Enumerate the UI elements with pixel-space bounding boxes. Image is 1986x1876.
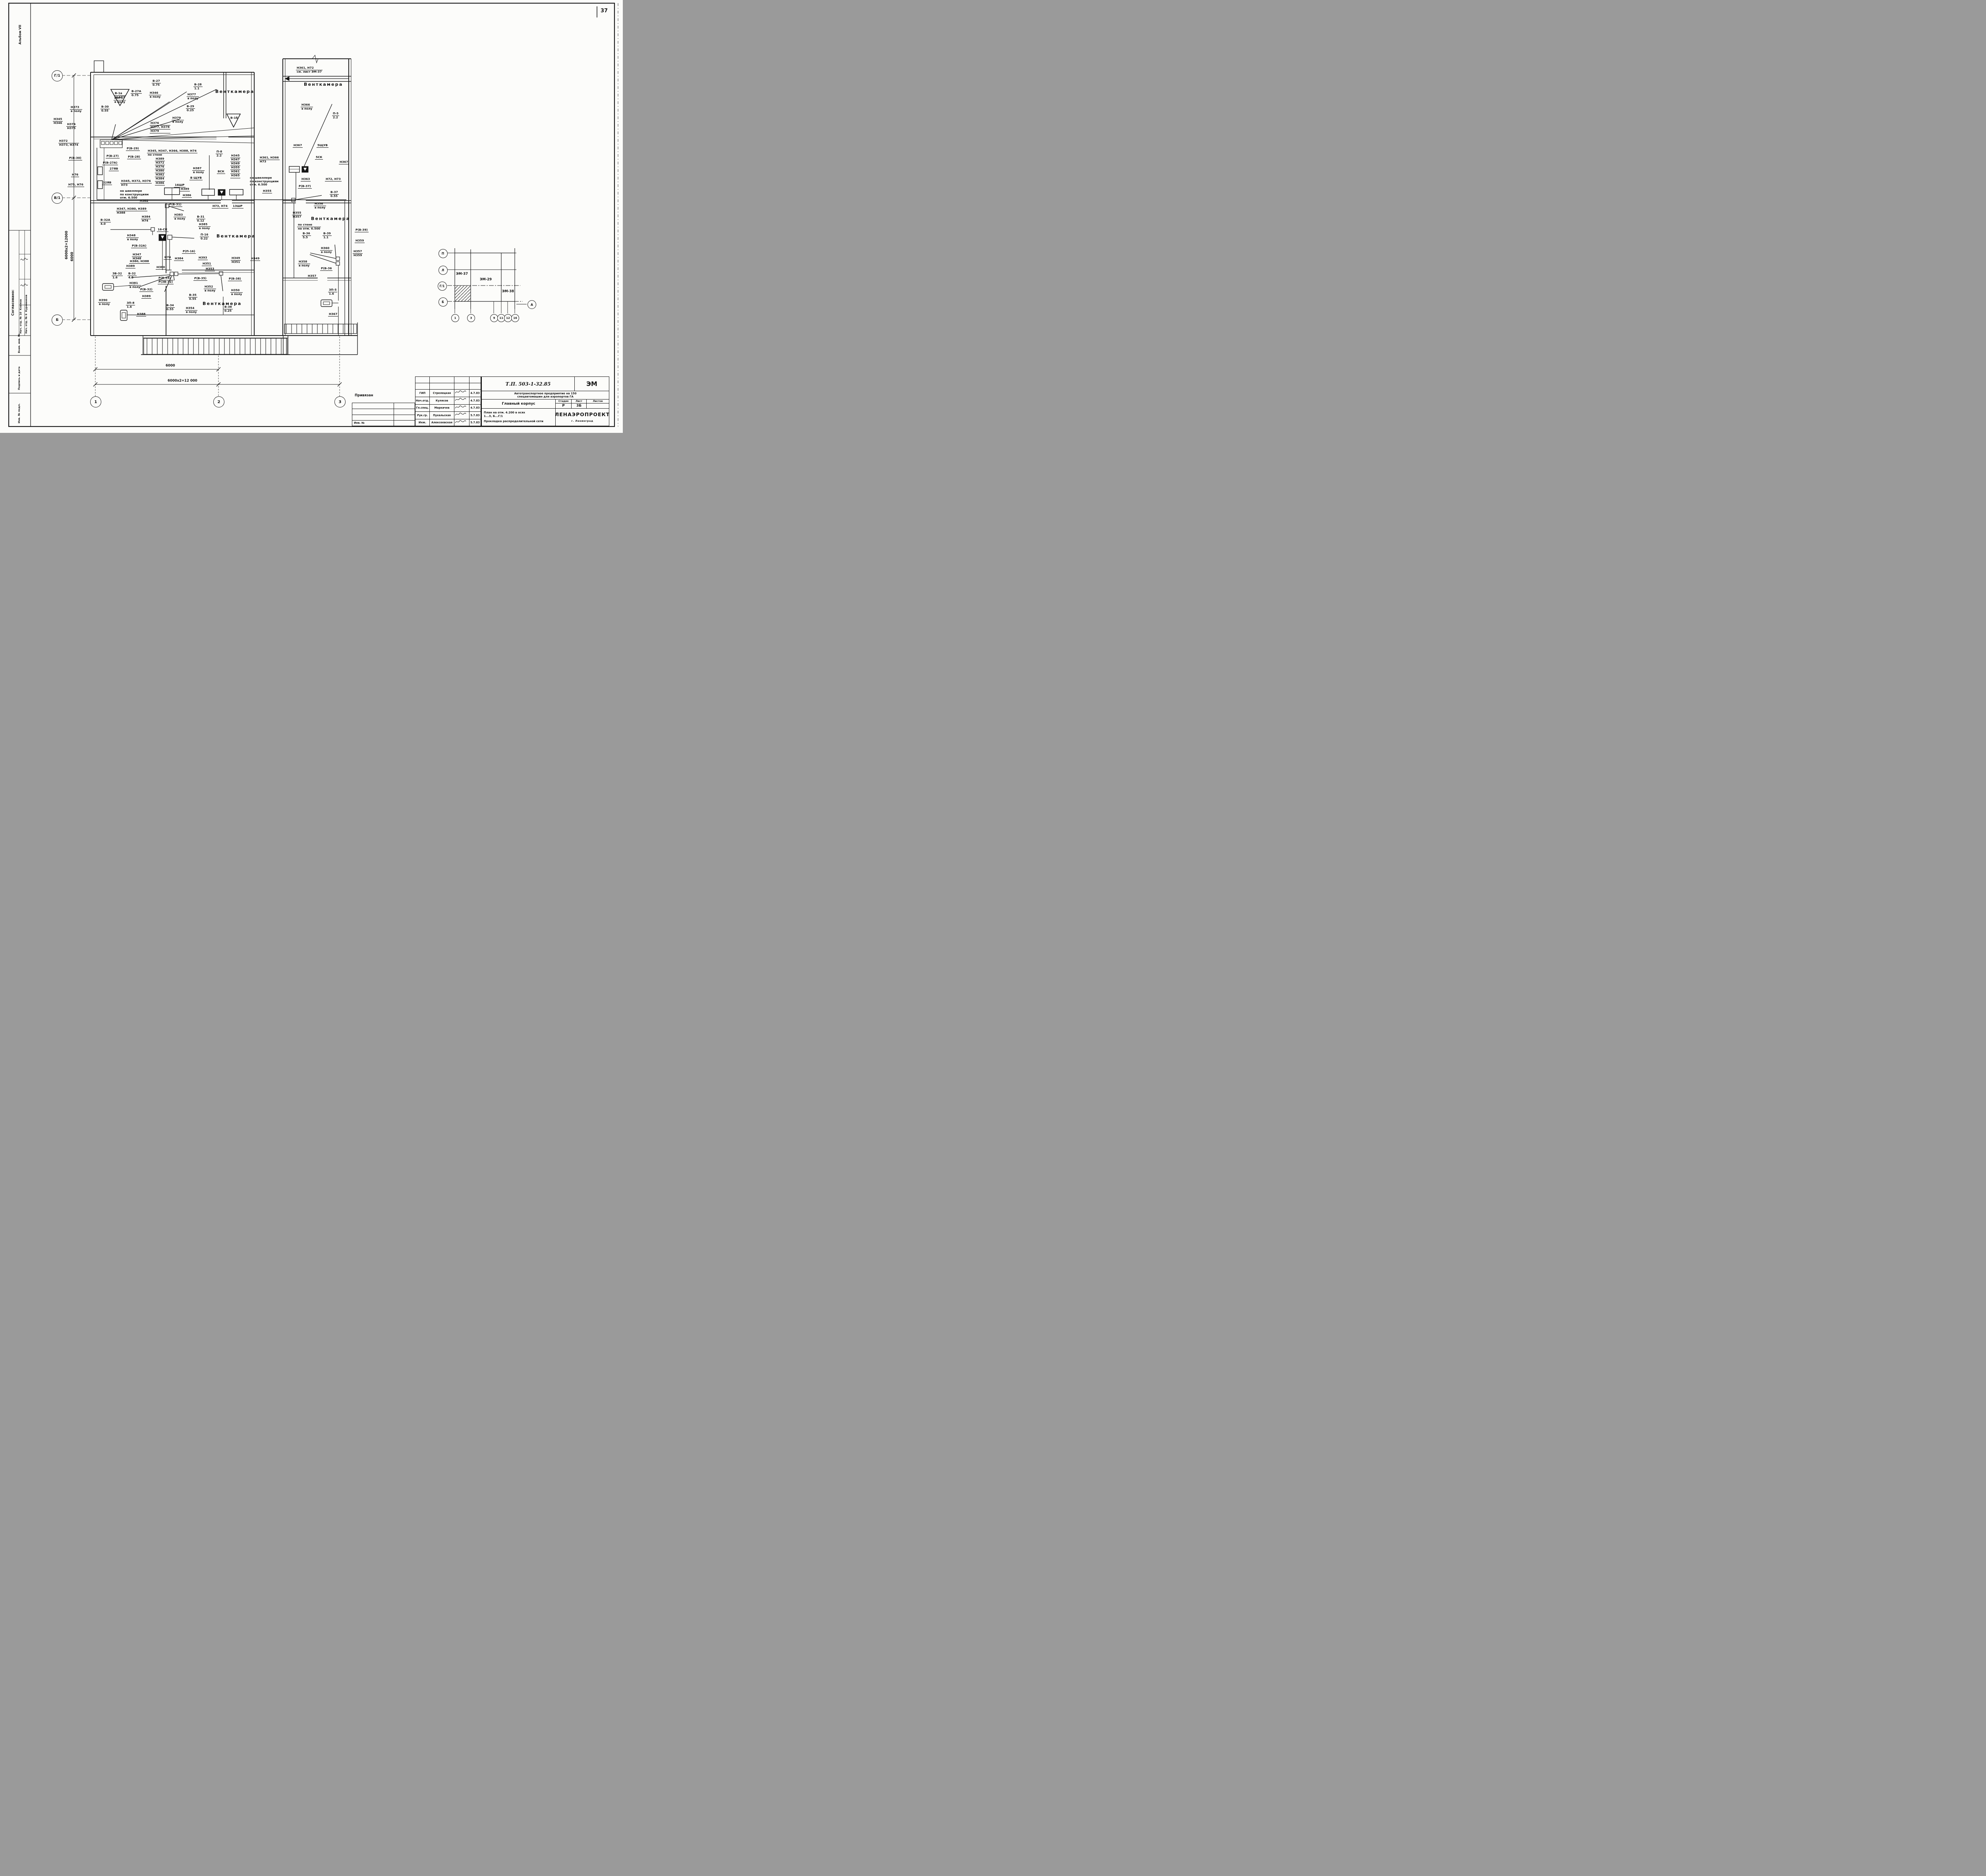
plan-callout: ЗП-81.6 xyxy=(126,301,135,309)
plan-callout: по стенена отм. 6.500 xyxy=(297,223,321,231)
agreed-label: Согласовано: xyxy=(11,290,15,316)
plan-callout: Н366в полу xyxy=(301,103,313,111)
plan-callout: В-1б xyxy=(230,116,239,120)
sig-empty-cell xyxy=(454,377,469,383)
sig-empty-cell xyxy=(430,383,454,390)
plan-callout: Р(В-32А) xyxy=(131,244,147,248)
plan-callout: Н379в полу xyxy=(172,116,184,124)
plan-callout: Н76 xyxy=(71,173,79,177)
sig-role: Гл.спец. xyxy=(415,405,430,412)
project-code: Т.П. 503-1-32.85 xyxy=(482,377,575,391)
plan-callout: В-300.55 xyxy=(100,105,110,113)
plan-callout: Р(В-32) xyxy=(139,288,153,292)
signature-scribble xyxy=(454,419,469,427)
key-plan-axis: Л xyxy=(439,266,448,275)
sheets-value xyxy=(587,403,609,409)
drawing-title: План на отм. 4.200 в осях 1...3, Б...Г/1… xyxy=(482,409,556,426)
signature-scribble xyxy=(454,397,469,405)
plan-callout: П-52.2 xyxy=(332,112,339,120)
sig-empty-cell xyxy=(469,383,481,390)
plan-callout: В-290.25 xyxy=(186,105,195,112)
sig-empty-cell xyxy=(415,377,430,383)
sig-date: 4.7.83 xyxy=(469,397,481,405)
plan-callout: Н380 xyxy=(156,266,166,270)
linked-note: Привязан xyxy=(355,394,373,398)
plan-callout: Н372Н373, Н374 xyxy=(58,139,79,147)
plan-callout: Н385в полу xyxy=(198,223,211,230)
plan-callout: Н358в полу xyxy=(298,260,310,268)
page-number: 37 xyxy=(601,8,608,14)
sig-role: ГИП xyxy=(415,390,430,397)
plan-callout: Н386 xyxy=(182,194,192,198)
key-plan-axis: 16 xyxy=(511,314,519,322)
sig-role: Инж. xyxy=(415,419,430,427)
plan-callout: Венткамера xyxy=(202,301,242,306)
sig-date: 4.7.83 xyxy=(469,405,481,412)
plan-callout: Венткамера xyxy=(216,234,256,239)
plan-callout: Н345Н347Н349Н355Н361Н365 xyxy=(230,154,240,178)
stage-value: Р xyxy=(556,403,572,409)
plan-callout: Венткамера xyxy=(214,89,255,94)
key-plan-axis: 9 xyxy=(490,314,498,322)
plan-callout: Н355 xyxy=(262,189,272,193)
key-plan-zone: ЭМ-38 xyxy=(502,290,514,293)
stage-header: Стадия xyxy=(556,400,572,403)
plan-callout: Н388 xyxy=(136,313,146,317)
plan-callout: Н363 xyxy=(301,178,311,181)
plan-callout: Н361, Н366Н73 xyxy=(259,156,280,164)
plan-callout: Н75, Н76 xyxy=(68,183,84,187)
plan-callout: 6000 xyxy=(165,364,176,368)
sheets-header: Листов xyxy=(587,400,609,403)
plan-callout: В-380.25 xyxy=(224,305,233,313)
plan-callout: 6000х2=12 000 xyxy=(167,379,198,383)
axis-marker: 2 xyxy=(213,396,224,407)
agreed-row-2: Нач. отд. № 6 Куравенков xyxy=(25,295,28,334)
plan-callout: П-82.2 xyxy=(216,150,223,158)
plan-callout: Р(П-16) xyxy=(182,250,196,254)
inv-label: Инв. № xyxy=(354,421,365,425)
plan-callout: Р(В-31) xyxy=(168,203,182,207)
plan-callout: 6000х2=12000 xyxy=(65,230,69,260)
axis-marker: В/1 xyxy=(52,193,63,204)
plan-callout: Р(В-37) xyxy=(298,185,312,189)
plan-callout: Н73, Н74 xyxy=(212,205,228,208)
plan-callout: Н367 xyxy=(293,144,303,148)
plan-callout: Н390в полу xyxy=(98,299,110,306)
plan-callout: Н349 xyxy=(250,257,260,261)
plan-callout: Н382 xyxy=(139,199,149,203)
plan-callout: 5ЩУВ xyxy=(317,144,328,148)
axis-marker: Г/1 xyxy=(52,70,63,81)
plan-callout: Н380, Н388 xyxy=(129,260,150,264)
plan-callout: Н387в полу xyxy=(192,167,205,174)
plan-callout: Н353 xyxy=(205,267,215,271)
drawing-mark: ЭМ xyxy=(575,377,609,391)
plan-callout: 5СК xyxy=(315,156,323,160)
sig-empty-cell xyxy=(454,383,469,390)
sig-name: Алексеевская xyxy=(430,419,454,427)
plan-callout: Р(В-28) xyxy=(127,155,141,159)
plan-callout: Н352в полу xyxy=(204,285,216,293)
plan-callout: В-270.75 xyxy=(152,79,161,87)
building-name: Главный корпус xyxy=(482,400,556,409)
plan-callout: Н377в полу xyxy=(187,93,199,100)
plan-callout: Н376Н377, Н378Н379 xyxy=(150,122,170,133)
plan-callout: на швеллерепо конструкциямотм. 6.500 xyxy=(249,176,279,187)
sig-date: 5.7.83 xyxy=(469,419,481,427)
plan-callout: Венткамера xyxy=(303,82,344,87)
plan-callout: на швеллерепо конструкциямотм. 6.500 xyxy=(119,189,149,200)
plan-callout: Н355Н357 xyxy=(292,211,302,219)
plan-callout: Н356в полу xyxy=(314,202,326,210)
sig-role: Рук.гр. xyxy=(415,412,430,419)
plan-callout: Р(В-30) xyxy=(68,156,82,160)
axis-marker: 3 xyxy=(334,396,346,407)
plan-callout: В-27А0.75 xyxy=(131,90,142,97)
plan-callout: Н74 xyxy=(164,256,172,260)
plan-callout: Н389 xyxy=(141,295,151,299)
plan-callout: Н359 xyxy=(355,239,365,243)
plan-callout: 16-СК xyxy=(157,228,168,232)
plan-callout: Н357 xyxy=(307,274,317,278)
plan-callout: Н367 xyxy=(328,313,338,317)
stamp-inv: Инв. № подл. xyxy=(17,403,21,423)
plan-callout: В-281.1 xyxy=(193,83,203,91)
key-plan-axis: 12 xyxy=(504,314,512,322)
plan-callout: Р(В-27) xyxy=(106,154,120,158)
sig-empty-cell xyxy=(415,383,430,390)
plan-callout: П-160.22 xyxy=(200,233,209,241)
plan-callout: Н384Н74 xyxy=(141,215,151,223)
key-plan-axis: Г/1 xyxy=(438,282,447,291)
sig-empty-cell xyxy=(430,377,454,383)
plan-callout: В-340.55 xyxy=(166,304,175,311)
plan-callout: В-391.1 xyxy=(323,232,332,239)
agreed-row-1: Нач. отд. № 10 Климов xyxy=(19,299,22,334)
plan-callout: Н389Н372Н376Н380Н382Н384Н386 xyxy=(155,157,165,185)
plan-callout: ЗП-51.6 xyxy=(328,288,337,296)
plan-callout: Н345Н346 xyxy=(53,118,63,125)
plan-callout: 27ЯВ xyxy=(109,167,119,171)
axis-marker: Б xyxy=(52,315,63,326)
plan-callout: Н72, Н73 xyxy=(325,178,342,181)
plan-callout: Р(В-39) xyxy=(355,228,369,232)
plan-callout: Н389 xyxy=(126,264,135,268)
stamp-vzam: Взам. инв. № xyxy=(17,334,21,353)
plan-callout: Н349Н351 xyxy=(231,257,241,264)
plan-callout: Н384 xyxy=(174,257,184,261)
key-plan-axis: П xyxy=(439,249,448,258)
key-plan-axis: 3 xyxy=(467,314,475,322)
plan-callout: Н351 xyxy=(202,262,212,266)
plan-callout: Н350в полу xyxy=(230,289,243,296)
plan-callout: Н383в полу xyxy=(174,213,186,221)
sheet-value: 3Б xyxy=(572,403,587,409)
plan-callout: Н345, Н372, Н376Н73 xyxy=(120,179,152,187)
sig-empty-cell xyxy=(469,377,481,383)
plan-callout: Н360в полу xyxy=(320,247,332,254)
key-plan-axis: А xyxy=(527,300,536,309)
plan-callout: Р(В-38) xyxy=(228,277,242,281)
plan-callout: Р(В-34)Р(ЗВ-32) xyxy=(158,276,174,284)
plan-callout: Н346в полу xyxy=(149,91,161,99)
key-plan-zone: ЭМ-29 xyxy=(480,278,492,282)
plan-callout: 32ЯВ xyxy=(102,181,112,185)
plan-callout: В-324.0 xyxy=(128,272,137,280)
plan-callout: 6000 xyxy=(71,251,74,262)
title-block-doc-grid: Инв. № xyxy=(352,403,415,426)
sig-date: 5.7.83 xyxy=(469,412,481,419)
plan-callout: Н373в полу xyxy=(70,106,82,113)
plan-callout: Р(В-36 xyxy=(320,267,332,271)
plan-callout: Н348в полу xyxy=(126,234,139,241)
plan-callout: В-350.55 xyxy=(188,293,197,301)
sig-date: 4.7.83 xyxy=(469,390,481,397)
plan-callout: Н357Н359 xyxy=(353,250,363,257)
plan-callout: Н347, Н380, Н389Н388 xyxy=(116,207,147,215)
drawing-sheet: В-1аЩАТЗВ-1бВ-270.75В-27А0.75Н346в полуН… xyxy=(0,0,623,433)
signature-scribble xyxy=(454,405,469,412)
plan-callout: В-310.12 xyxy=(196,215,205,223)
plan-callout: Н361, Н72см. лист ЭМ-37 xyxy=(296,66,323,74)
sig-name: Кулясов xyxy=(430,397,454,405)
plan-callout: В-365.5 xyxy=(302,232,311,239)
title-block-main: Т.П. 503-1-32.85 ЭМ Автотранспортное пре… xyxy=(481,376,609,426)
plan-callout: Н345, Н347, Н366, Н388, Н74по стене xyxy=(147,149,197,157)
plan-callout: Р(В-29) xyxy=(126,147,140,151)
plan-callout: 13ШР xyxy=(232,205,243,208)
organization: ЛЕНАЭРОПРОЕКТ г. Ленинград xyxy=(556,409,609,426)
plan-callout: В-32А4.0 xyxy=(100,218,111,226)
plan-callout: Н367 xyxy=(339,160,349,164)
plan-callout: В-370.55 xyxy=(330,191,339,198)
plan-callout: Н389 xyxy=(180,187,190,191)
plan-callout: Н393 xyxy=(198,256,208,260)
plan-callout: В ЩУВ xyxy=(189,176,203,180)
facility-name: Автотранспортное предприятие на 150 спец… xyxy=(482,391,609,400)
title-block-signatures: ГИПСтрелецкая4.7.83Нач.отд.Кулясов4.7.83… xyxy=(415,376,481,426)
plan-callout: Р(В-27А) xyxy=(102,161,118,165)
plan-callout: Н354в полу xyxy=(185,307,197,314)
stamp-podpis: Подпись и дата xyxy=(17,367,21,390)
plan-callout: Венткамера xyxy=(310,216,351,221)
album-label: Альбом VII xyxy=(18,25,22,44)
key-plan-axis: 1 xyxy=(451,314,459,322)
signature-scribble xyxy=(454,412,469,419)
plan-callout: Н374Н375 xyxy=(66,123,76,130)
plan-callout: Р(В-35) xyxy=(193,277,207,281)
key-plan-zone: ЭМ-37 xyxy=(456,272,468,276)
sig-role: Нач.отд. xyxy=(415,397,430,405)
plan-callout: Н375в полу xyxy=(114,97,126,104)
signature-scribble xyxy=(454,390,469,397)
sig-name: Пухальская xyxy=(430,412,454,419)
axis-marker: 1 xyxy=(90,396,101,407)
key-plan-axis: Б xyxy=(439,297,448,307)
sig-name: Маркичев xyxy=(430,405,454,412)
sheet-header: Лист xyxy=(572,400,587,403)
sig-name: Стрелецкая xyxy=(430,390,454,397)
plan-callout: ВСК xyxy=(217,170,225,174)
plan-callout: ЗВ-321.6 xyxy=(112,272,123,280)
